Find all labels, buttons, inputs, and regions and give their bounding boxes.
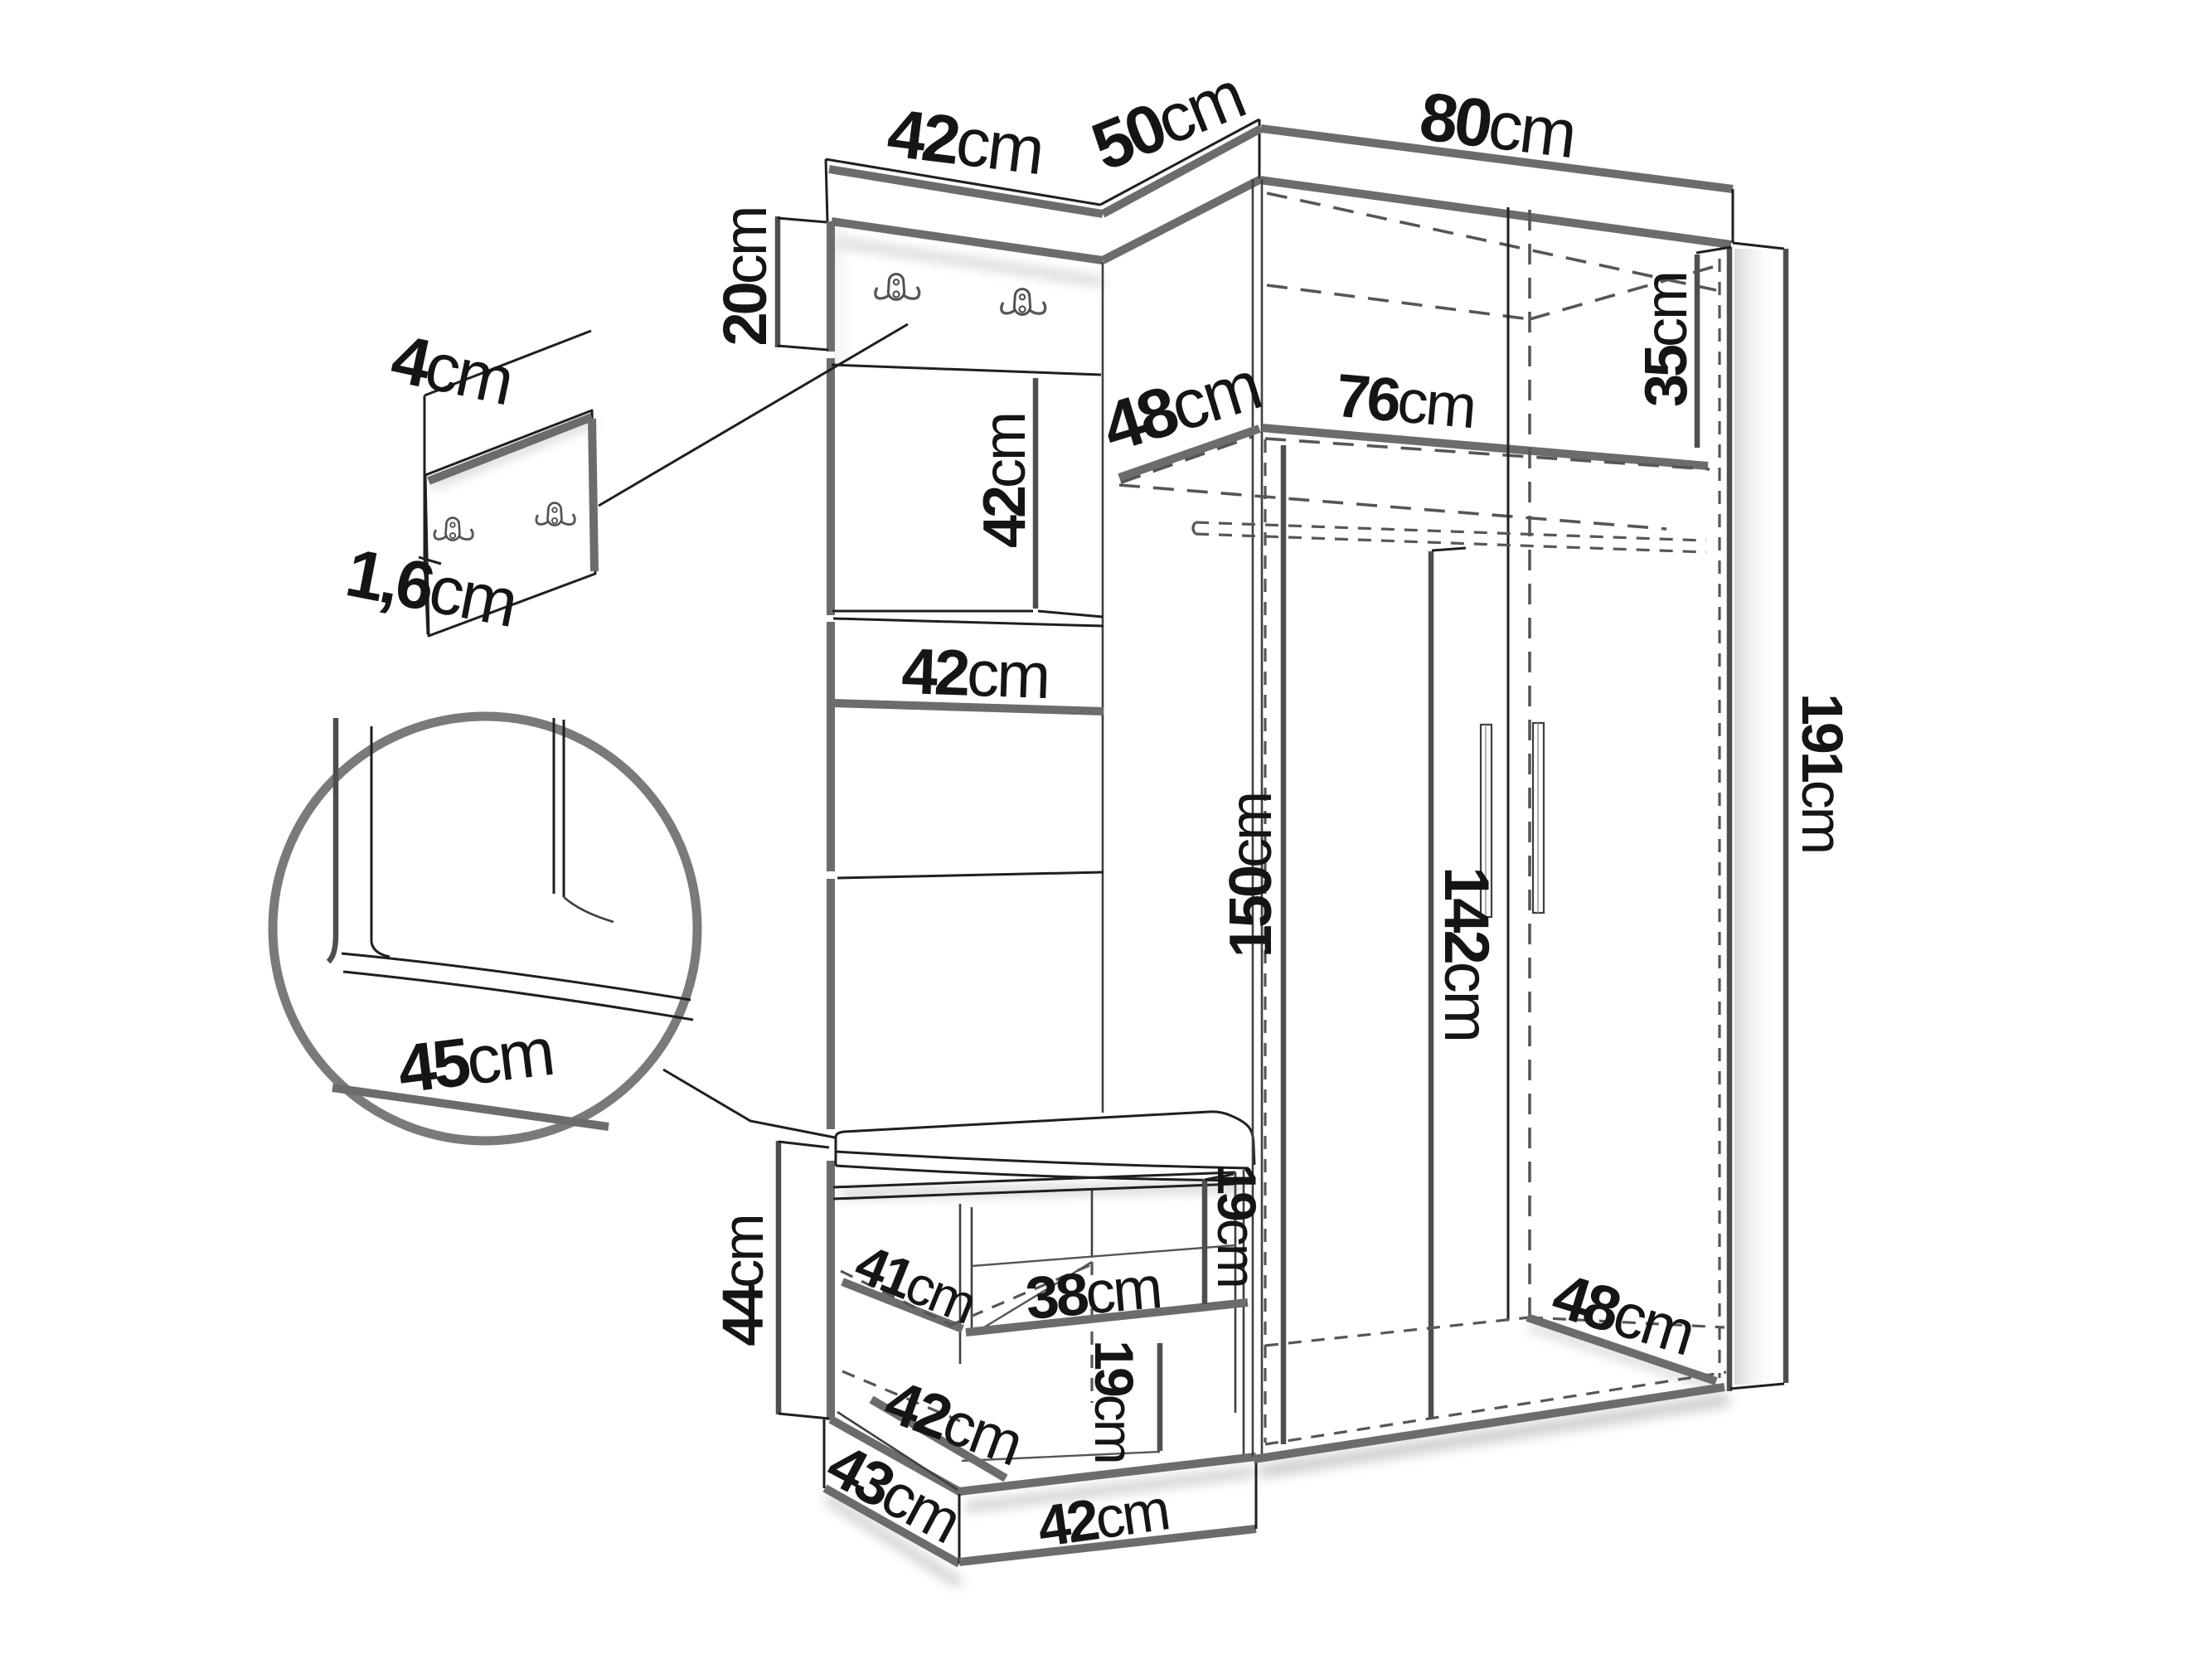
- svg-text:142cm: 142cm: [1431, 866, 1501, 1041]
- svg-text:76cm: 76cm: [1333, 361, 1477, 441]
- svg-text:44cm: 44cm: [711, 1215, 775, 1346]
- svg-text:35cm: 35cm: [1633, 273, 1700, 407]
- svg-text:42cm: 42cm: [900, 634, 1050, 712]
- svg-text:20cm: 20cm: [711, 208, 779, 347]
- svg-text:42cm: 42cm: [972, 414, 1038, 548]
- svg-text:19cm: 19cm: [1084, 1340, 1145, 1462]
- svg-text:19cm: 19cm: [1206, 1164, 1268, 1286]
- svg-text:150cm: 150cm: [1218, 793, 1284, 958]
- svg-text:38cm: 38cm: [1023, 1254, 1162, 1332]
- svg-text:191cm: 191cm: [1790, 693, 1855, 852]
